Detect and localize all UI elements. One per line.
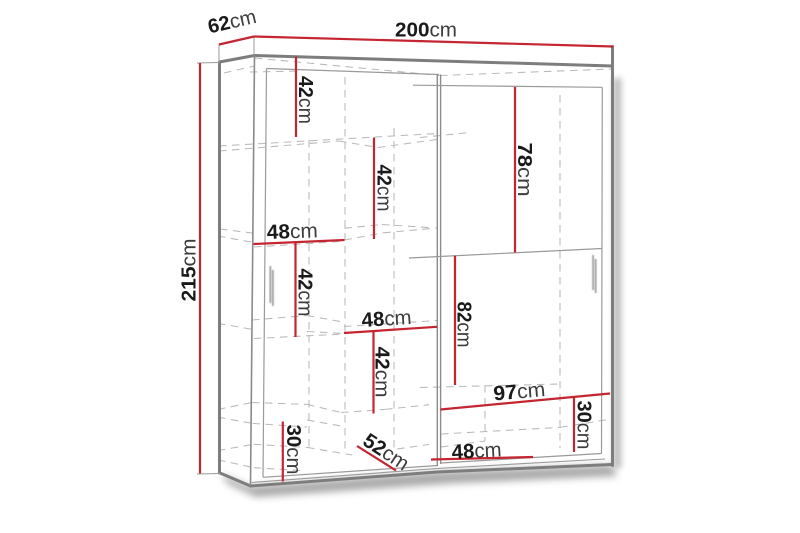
svg-text:215cm: 215cm xyxy=(179,239,201,302)
svg-text:48cm: 48cm xyxy=(266,219,318,244)
svg-text:42cm: 42cm xyxy=(294,76,317,124)
svg-text:42cm: 42cm xyxy=(373,165,396,212)
svg-text:42cm: 42cm xyxy=(294,269,317,317)
svg-text:200cm: 200cm xyxy=(395,20,457,42)
svg-text:30cm: 30cm xyxy=(282,425,305,475)
svg-text:48cm: 48cm xyxy=(361,306,412,332)
svg-text:78cm: 78cm xyxy=(513,143,536,197)
svg-text:97cm: 97cm xyxy=(492,378,546,405)
svg-text:82cm: 82cm xyxy=(453,302,476,348)
svg-text:30cm: 30cm xyxy=(573,401,596,450)
svg-text:48cm: 48cm xyxy=(451,438,502,464)
svg-text:42cm: 42cm xyxy=(371,347,394,398)
